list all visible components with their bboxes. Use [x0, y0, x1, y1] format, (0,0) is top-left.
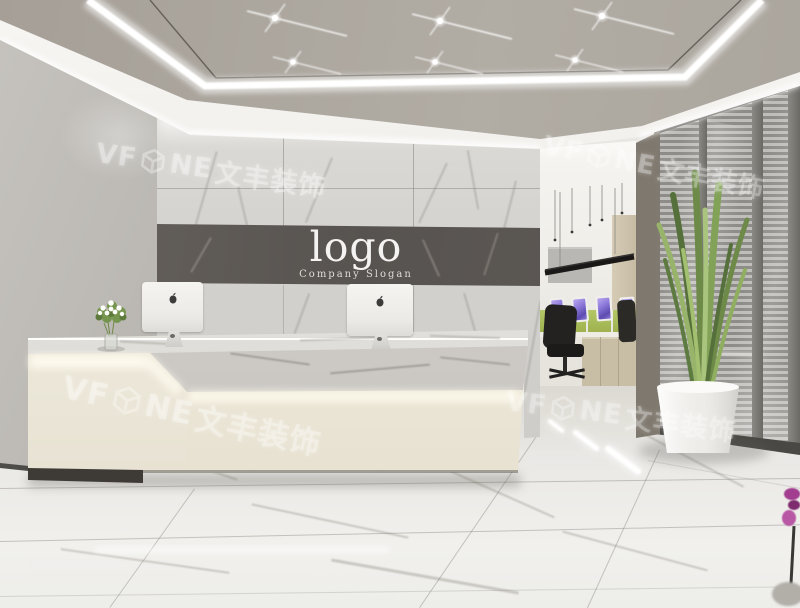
- imac-computer: [347, 284, 413, 336]
- watermark-text: VF: [504, 386, 549, 422]
- floor-reflect-line: [95, 547, 390, 553]
- watermark-text: NE: [168, 148, 215, 185]
- cube-logo-icon: [548, 393, 578, 423]
- watermark-text: NE: [141, 387, 197, 432]
- monitor-screen: [597, 298, 610, 320]
- imac-computer: [142, 282, 203, 332]
- apple-logo-icon: [168, 292, 178, 305]
- reception-render: logo Company Slogan: [0, 0, 800, 608]
- office-desk-cabinet: [582, 337, 636, 391]
- watermark-text: VF: [59, 369, 113, 414]
- watermark-text: NE: [612, 144, 658, 181]
- cube-logo-icon: [584, 141, 614, 171]
- cube-logo-icon: [109, 382, 146, 419]
- cube-logo-icon: [138, 146, 168, 176]
- watermark-text: VF: [94, 138, 139, 174]
- flower-vase: [88, 296, 134, 354]
- watermark-text: NE: [578, 395, 625, 431]
- pendant-lamp: [540, 180, 636, 290]
- apple-logo-icon: [375, 295, 385, 308]
- company-logo-text: logo: [276, 227, 436, 267]
- company-slogan-text: Company Slogan: [276, 269, 436, 280]
- office-monitor: [595, 295, 613, 321]
- watermark-text: VF: [541, 130, 586, 167]
- edge-flower-stand: [770, 488, 800, 608]
